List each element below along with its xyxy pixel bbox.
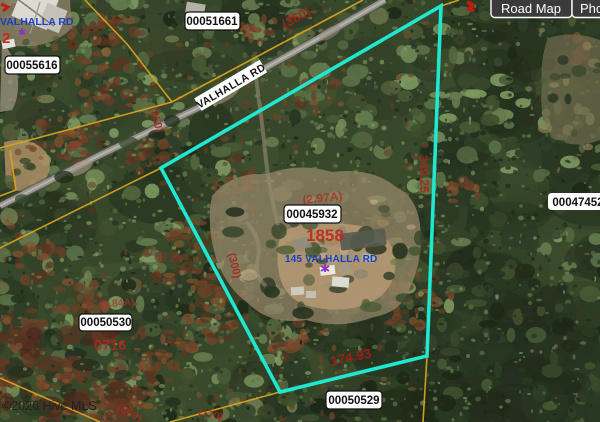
svg-text:Pho: Pho [580,1,600,16]
svg-text:1858: 1858 [306,226,344,245]
svg-text:00045932: 00045932 [286,209,337,221]
svg-text:00055616: 00055616 [6,60,57,72]
svg-text:VALHALLA RD: VALHALLA RD [0,16,74,28]
svg-text:00050530: 00050530 [80,317,131,329]
svg-text:349.25: 349.25 [416,155,431,194]
svg-text:0716: 0716 [94,338,126,354]
svg-text:2: 2 [2,30,10,47]
svg-text:00051661: 00051661 [186,16,238,28]
svg-text:Road Map: Road Map [501,1,561,16]
svg-text:145 VALHALLA RD: 145 VALHALLA RD [285,254,377,265]
svg-text:©2026 Hive MLS: ©2026 Hive MLS [2,399,97,413]
svg-text:00050529: 00050529 [328,395,379,407]
svg-text:00047452: 00047452 [552,197,600,209]
